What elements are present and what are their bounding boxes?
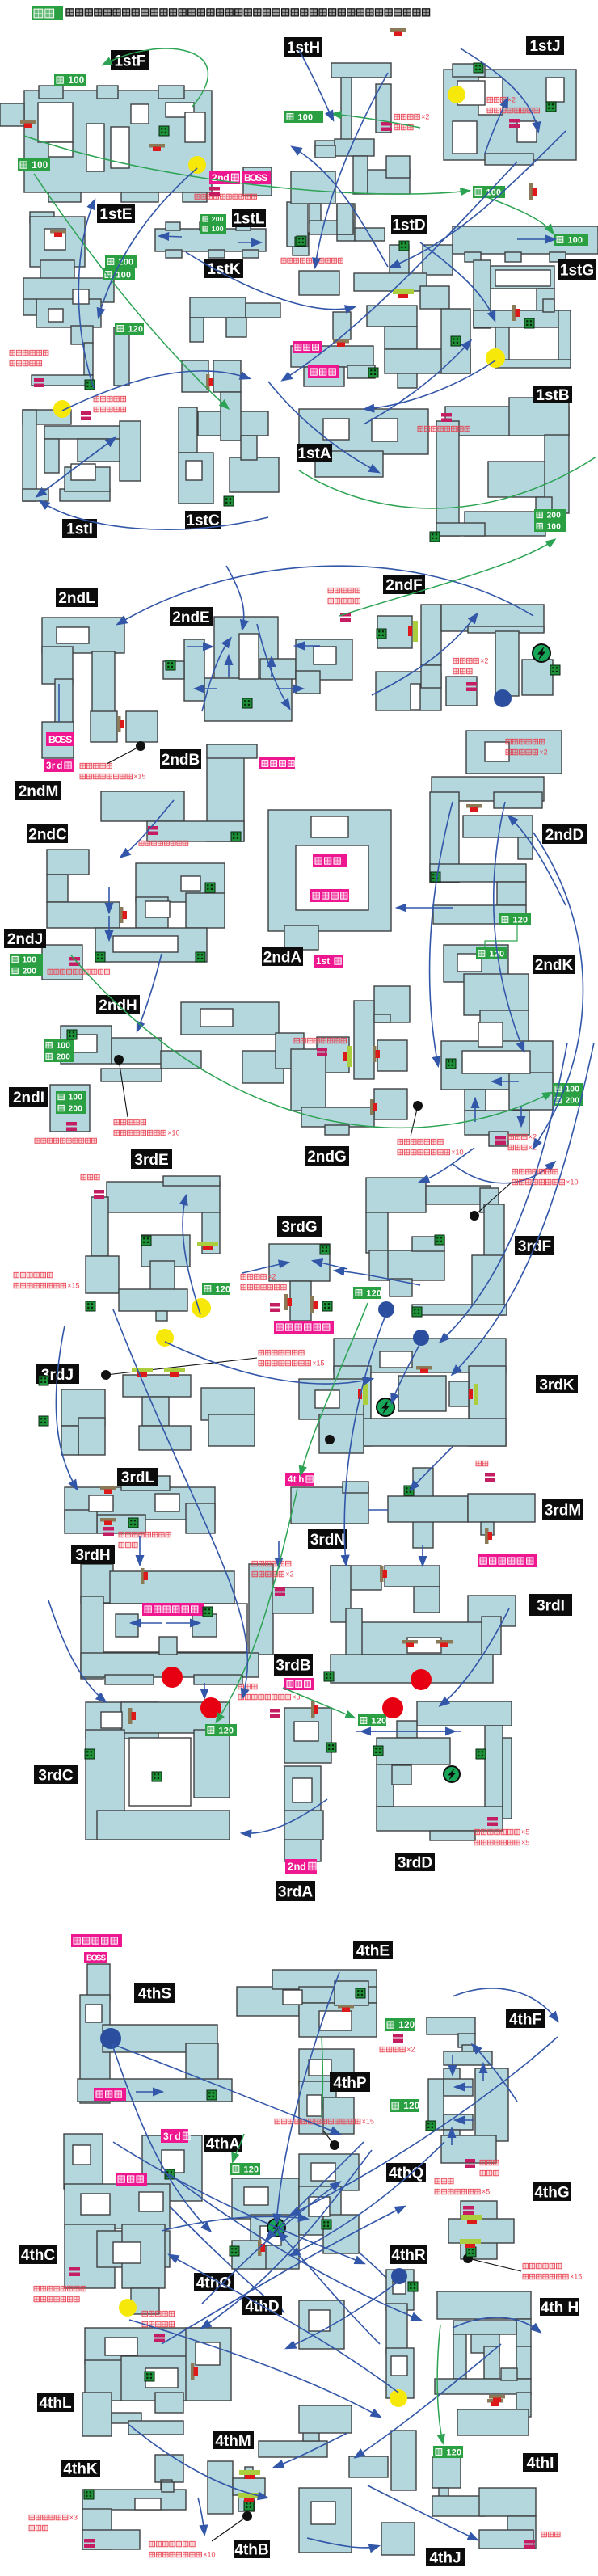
svg-text:4thG: 4thG <box>534 2184 569 2201</box>
svg-text:0: 0 <box>78 1094 82 1102</box>
svg-text:2: 2 <box>404 2021 409 2030</box>
svg-text:4th H: 4th H <box>541 2300 579 2317</box>
svg-text:1stE: 1stE <box>99 206 132 223</box>
svg-text:0: 0 <box>578 235 583 245</box>
svg-text:4thP: 4thP <box>333 2075 367 2092</box>
svg-text:d: d <box>175 2131 180 2142</box>
svg-text:t: t <box>326 957 330 967</box>
svg-text:0: 0 <box>499 949 504 959</box>
svg-text:1stI: 1stI <box>66 521 93 538</box>
svg-text:2ndB: 2ndB <box>162 752 200 769</box>
svg-text:2: 2 <box>377 1716 381 1726</box>
svg-text:2: 2 <box>518 915 523 925</box>
svg-text:1: 1 <box>568 235 573 245</box>
svg-text:2ndM: 2ndM <box>19 783 59 800</box>
svg-text:1stK: 1stK <box>207 261 240 278</box>
svg-text:4thR: 4thR <box>391 2247 426 2264</box>
svg-text:×15: ×15 <box>67 1282 79 1290</box>
svg-text:2ndE: 2ndE <box>172 609 209 626</box>
svg-text:0: 0 <box>229 1726 234 1735</box>
svg-text:d: d <box>300 1861 306 1873</box>
svg-text:3rdD: 3rdD <box>398 1854 432 1871</box>
svg-text:0: 0 <box>220 215 224 223</box>
svg-text:S: S <box>261 172 267 183</box>
svg-text:0: 0 <box>556 523 561 532</box>
svg-text:×2: ×2 <box>285 1570 293 1579</box>
svg-text:1stA: 1stA <box>297 445 331 462</box>
svg-text:4thE: 4thE <box>356 1942 390 1959</box>
svg-text:0: 0 <box>128 257 133 267</box>
svg-text:2ndF: 2ndF <box>385 577 422 594</box>
svg-text:1stG: 1stG <box>560 262 594 279</box>
svg-text:×2: ×2 <box>406 2046 415 2054</box>
svg-text:2: 2 <box>224 1726 229 1735</box>
svg-text:3rdE: 3rdE <box>134 1152 168 1169</box>
svg-text:×15: ×15 <box>312 1360 324 1368</box>
svg-text:2: 2 <box>409 2102 414 2111</box>
svg-text:0: 0 <box>121 270 126 280</box>
svg-text:3rdN: 3rdN <box>310 1532 345 1549</box>
svg-text:0: 0 <box>65 1042 70 1051</box>
svg-text:3rdH: 3rdH <box>75 1547 110 1564</box>
svg-text:×2: ×2 <box>539 748 547 757</box>
svg-text:1: 1 <box>367 1288 372 1298</box>
svg-text:0: 0 <box>556 512 561 521</box>
svg-text:t: t <box>293 1475 297 1485</box>
svg-text:2: 2 <box>288 1861 293 1873</box>
svg-text:×2: ×2 <box>480 657 488 665</box>
svg-text:1stH: 1stH <box>287 40 320 57</box>
svg-text:0: 0 <box>523 915 528 925</box>
svg-text:s: s <box>322 957 326 967</box>
svg-text:1stJ: 1stJ <box>529 38 560 55</box>
svg-text:0: 0 <box>415 2102 419 2111</box>
svg-text:0: 0 <box>457 2447 461 2457</box>
svg-text:×10: ×10 <box>451 1149 463 1157</box>
svg-text:0: 0 <box>575 1086 579 1094</box>
svg-text:×2: ×2 <box>421 113 429 121</box>
svg-text:4thA: 4thA <box>206 2135 241 2152</box>
svg-text:2: 2 <box>452 2447 457 2457</box>
svg-text:4thB: 4thB <box>234 2541 268 2558</box>
svg-text:4thJ: 4thJ <box>429 2549 461 2566</box>
svg-text:3rdM: 3rdM <box>545 1502 581 1519</box>
svg-text:1: 1 <box>219 1726 224 1735</box>
svg-text:2ndL: 2ndL <box>58 590 95 607</box>
svg-text:2ndK: 2ndK <box>535 957 574 974</box>
svg-text:0: 0 <box>43 161 48 171</box>
svg-text:1stB: 1stB <box>536 387 569 404</box>
svg-text:4thF: 4thF <box>509 2011 541 2028</box>
svg-text:1: 1 <box>298 112 303 122</box>
svg-text:4thC: 4thC <box>21 2247 56 2264</box>
svg-text:0: 0 <box>32 968 36 976</box>
svg-text:×2: ×2 <box>507 96 516 104</box>
svg-text:0: 0 <box>573 235 578 245</box>
svg-text:1: 1 <box>372 1716 377 1726</box>
svg-text:3rdI: 3rdI <box>537 1597 565 1614</box>
svg-text:0: 0 <box>225 1284 230 1294</box>
svg-text:S: S <box>101 1954 107 1963</box>
svg-text:3rdB: 3rdB <box>276 1657 310 1674</box>
svg-text:0: 0 <box>37 161 42 171</box>
svg-text:×5: ×5 <box>482 2188 490 2196</box>
svg-text:0: 0 <box>377 1288 381 1298</box>
svg-text:2: 2 <box>372 1288 377 1298</box>
svg-text:3rdK: 3rdK <box>539 1377 575 1393</box>
svg-text:×10: ×10 <box>566 1178 578 1187</box>
svg-text:×2: ×2 <box>529 1133 537 1141</box>
svg-text:×5: ×5 <box>521 1839 529 1847</box>
svg-text:2: 2 <box>212 172 217 183</box>
svg-text:0: 0 <box>410 2021 415 2030</box>
svg-text:0: 0 <box>138 324 143 334</box>
svg-text:0: 0 <box>254 2165 259 2174</box>
svg-text:0: 0 <box>303 112 308 122</box>
svg-text:×15: ×15 <box>362 2118 374 2126</box>
svg-text:1: 1 <box>490 949 495 959</box>
svg-text:4thO: 4thO <box>196 2275 231 2291</box>
svg-text:2ndJ: 2ndJ <box>7 931 43 948</box>
svg-text:0: 0 <box>32 956 36 965</box>
svg-text:×15: ×15 <box>133 773 145 781</box>
svg-text:×2: ×2 <box>267 1273 276 1281</box>
svg-text:×15: ×15 <box>570 2273 582 2281</box>
svg-text:0: 0 <box>126 270 131 280</box>
svg-text:S: S <box>65 734 72 745</box>
svg-text:2ndI: 2ndI <box>13 1090 44 1107</box>
svg-text:×5: ×5 <box>521 1828 529 1836</box>
svg-text:0: 0 <box>308 112 313 122</box>
svg-text:1: 1 <box>447 2447 452 2457</box>
svg-text:2ndH: 2ndH <box>99 997 137 1014</box>
svg-text:0: 0 <box>74 76 78 86</box>
svg-text:1stF: 1stF <box>114 53 145 70</box>
svg-text:1: 1 <box>244 2165 249 2174</box>
svg-text:3rdG: 3rdG <box>281 1219 317 1236</box>
svg-text:0: 0 <box>65 1053 70 1062</box>
svg-text:2ndD: 2ndD <box>545 827 584 844</box>
svg-text:3: 3 <box>46 761 51 771</box>
svg-text:0: 0 <box>575 1097 579 1106</box>
svg-text:r: r <box>169 2131 173 2142</box>
svg-text:0: 0 <box>79 76 84 86</box>
svg-text:r: r <box>52 761 56 771</box>
svg-text:1: 1 <box>128 324 133 334</box>
svg-text:4thL: 4thL <box>39 2395 72 2412</box>
svg-text:h: h <box>298 1475 304 1485</box>
svg-text:2: 2 <box>249 2165 254 2174</box>
svg-text:4thM: 4thM <box>215 2433 251 2450</box>
svg-text:1: 1 <box>513 915 518 925</box>
svg-text:×10: ×10 <box>167 1129 179 1137</box>
svg-text:1stD: 1stD <box>392 217 425 234</box>
svg-text:×10: ×10 <box>203 2551 215 2559</box>
svg-text:0: 0 <box>220 225 224 233</box>
svg-text:×3: ×3 <box>69 2514 78 2522</box>
svg-text:2ndA: 2ndA <box>263 949 302 966</box>
svg-text:4thS: 4thS <box>138 1985 171 2002</box>
svg-text:2ndC: 2ndC <box>28 826 67 843</box>
svg-text:1: 1 <box>216 1284 221 1294</box>
svg-text:2: 2 <box>133 324 138 334</box>
svg-text:3rdL: 3rdL <box>121 1469 155 1486</box>
svg-text:1: 1 <box>116 270 121 280</box>
svg-text:4thK: 4thK <box>63 2460 98 2477</box>
svg-text:3rdC: 3rdC <box>38 1767 74 1784</box>
svg-text:1stL: 1stL <box>233 210 264 227</box>
svg-text:d: d <box>57 761 62 771</box>
svg-text:2: 2 <box>221 1284 225 1294</box>
svg-text:3: 3 <box>163 2131 169 2142</box>
svg-text:0: 0 <box>124 257 128 267</box>
svg-text:0: 0 <box>78 1105 82 1114</box>
svg-text:4thI: 4thI <box>527 2455 554 2472</box>
svg-text:3rdA: 3rdA <box>278 1883 314 1900</box>
svg-text:0: 0 <box>381 1716 386 1726</box>
svg-text:2ndG: 2ndG <box>307 1149 347 1166</box>
